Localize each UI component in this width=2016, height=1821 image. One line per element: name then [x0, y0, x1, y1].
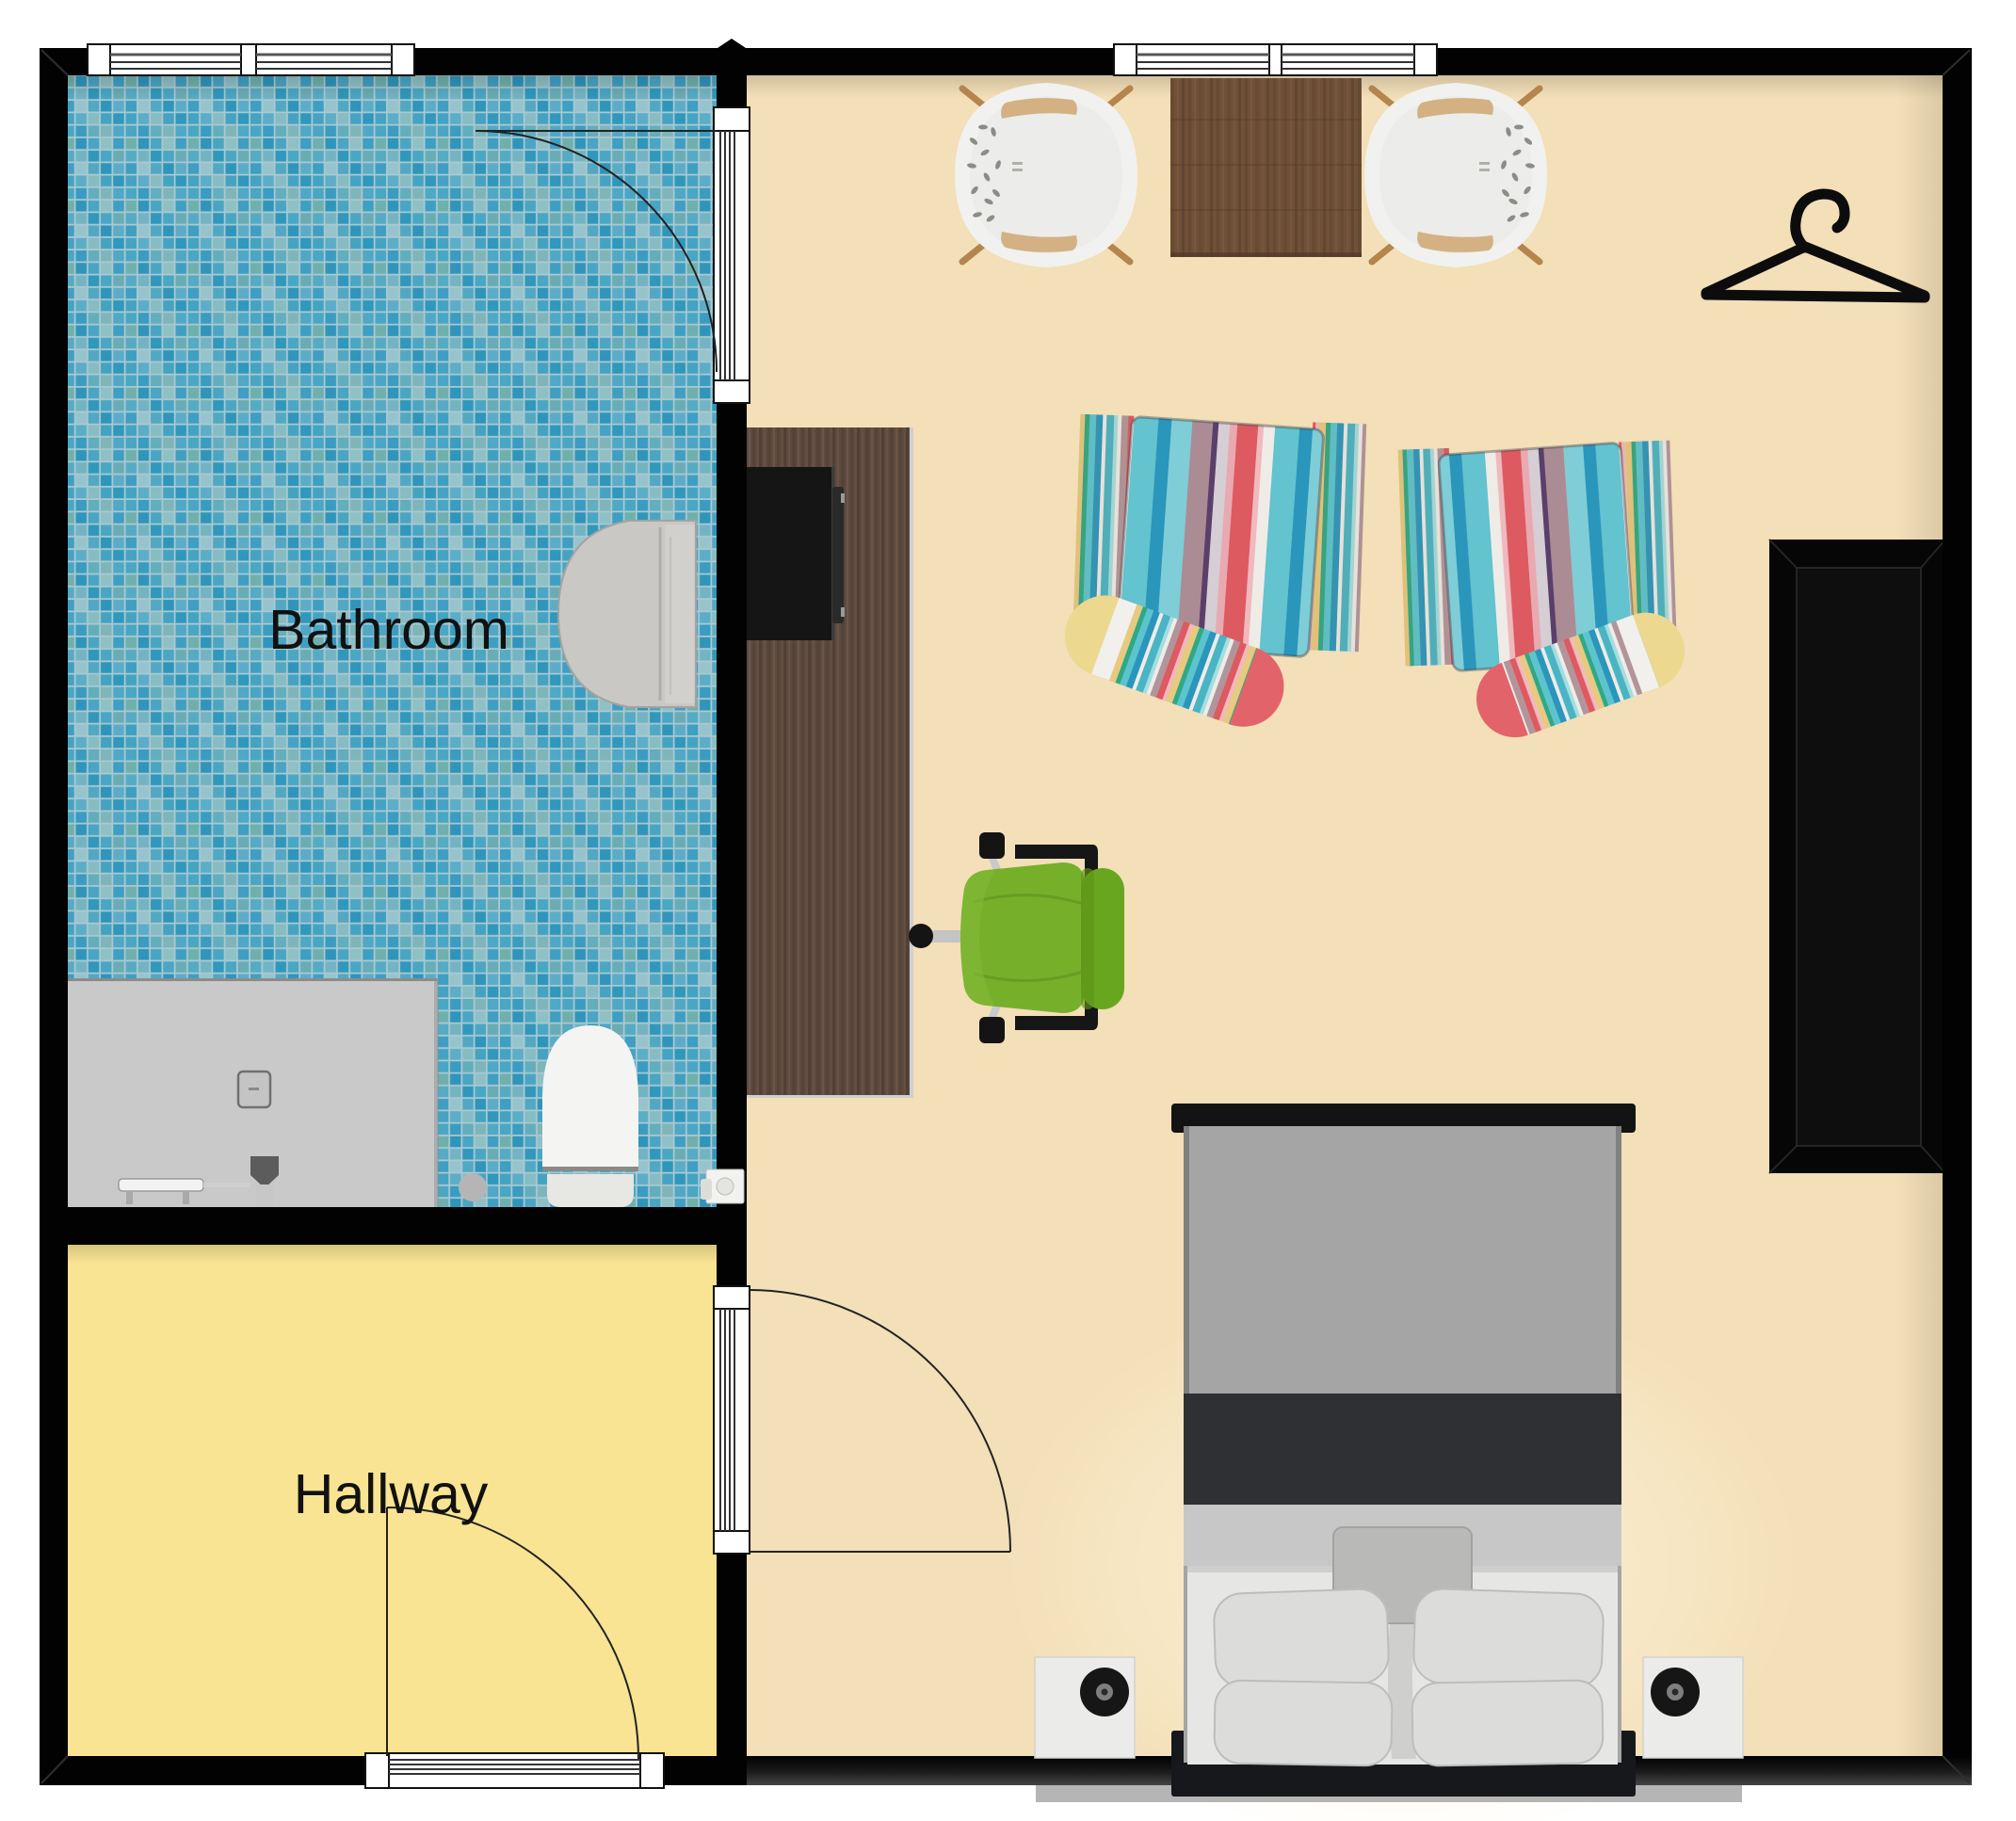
svg-text:Bathroom: Bathroom [268, 599, 509, 661]
svg-text:Hallway: Hallway [294, 1463, 489, 1525]
